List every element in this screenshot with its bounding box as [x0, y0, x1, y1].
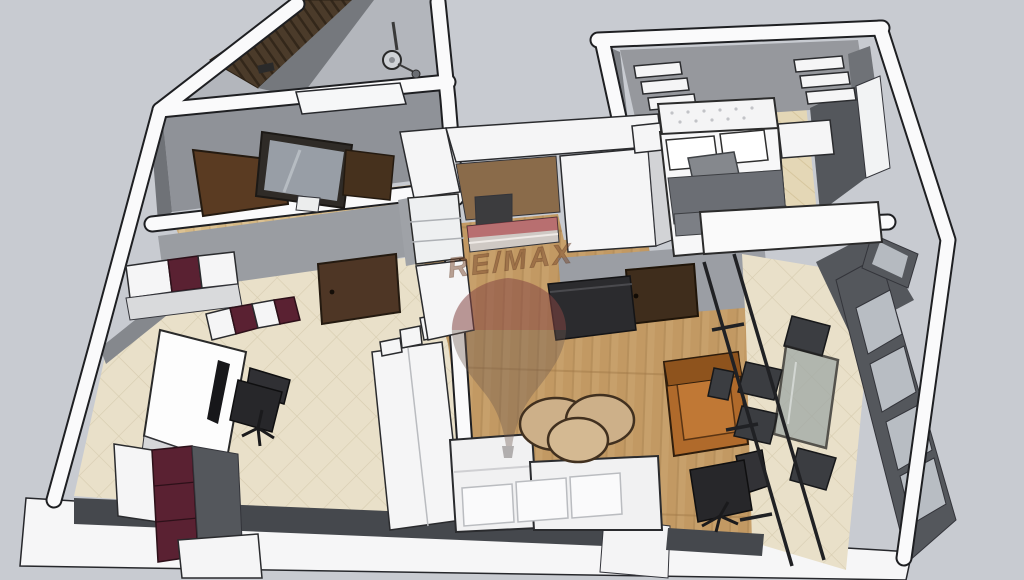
wardrobe-ledge — [296, 196, 320, 212]
cabinet-step — [380, 338, 402, 356]
office-shelf-maroon — [168, 256, 202, 292]
glass-dining-table — [774, 346, 838, 448]
side-table-right — [778, 120, 834, 158]
office-unit-gray — [192, 446, 242, 546]
bedroom-door-handle — [634, 294, 639, 299]
kitchen-tall-column — [560, 148, 656, 252]
apartment-3d-floor-plan: RE/MAX — [0, 0, 1024, 580]
balloon-basket — [502, 446, 514, 458]
nightstand-left — [632, 123, 663, 153]
floor-plan-screenshot: RE/MAX — [0, 0, 1024, 580]
office-cabinet-low — [178, 534, 262, 578]
hall-door-2 — [343, 150, 394, 200]
sofa-cushion — [570, 473, 622, 518]
shower-mixer — [412, 70, 420, 78]
office-shelf-white — [198, 252, 238, 288]
office-cabinet-white — [114, 444, 158, 522]
cabinet-step — [400, 326, 422, 348]
office-shelf-white — [126, 260, 172, 298]
office-door — [318, 254, 400, 324]
table-slice — [548, 418, 608, 462]
sofa-cushion — [462, 484, 514, 526]
office-door-handle — [330, 290, 335, 295]
sofa-cushion — [516, 478, 568, 522]
tufted-headboard — [658, 98, 778, 134]
shower-head-center — [389, 57, 395, 63]
